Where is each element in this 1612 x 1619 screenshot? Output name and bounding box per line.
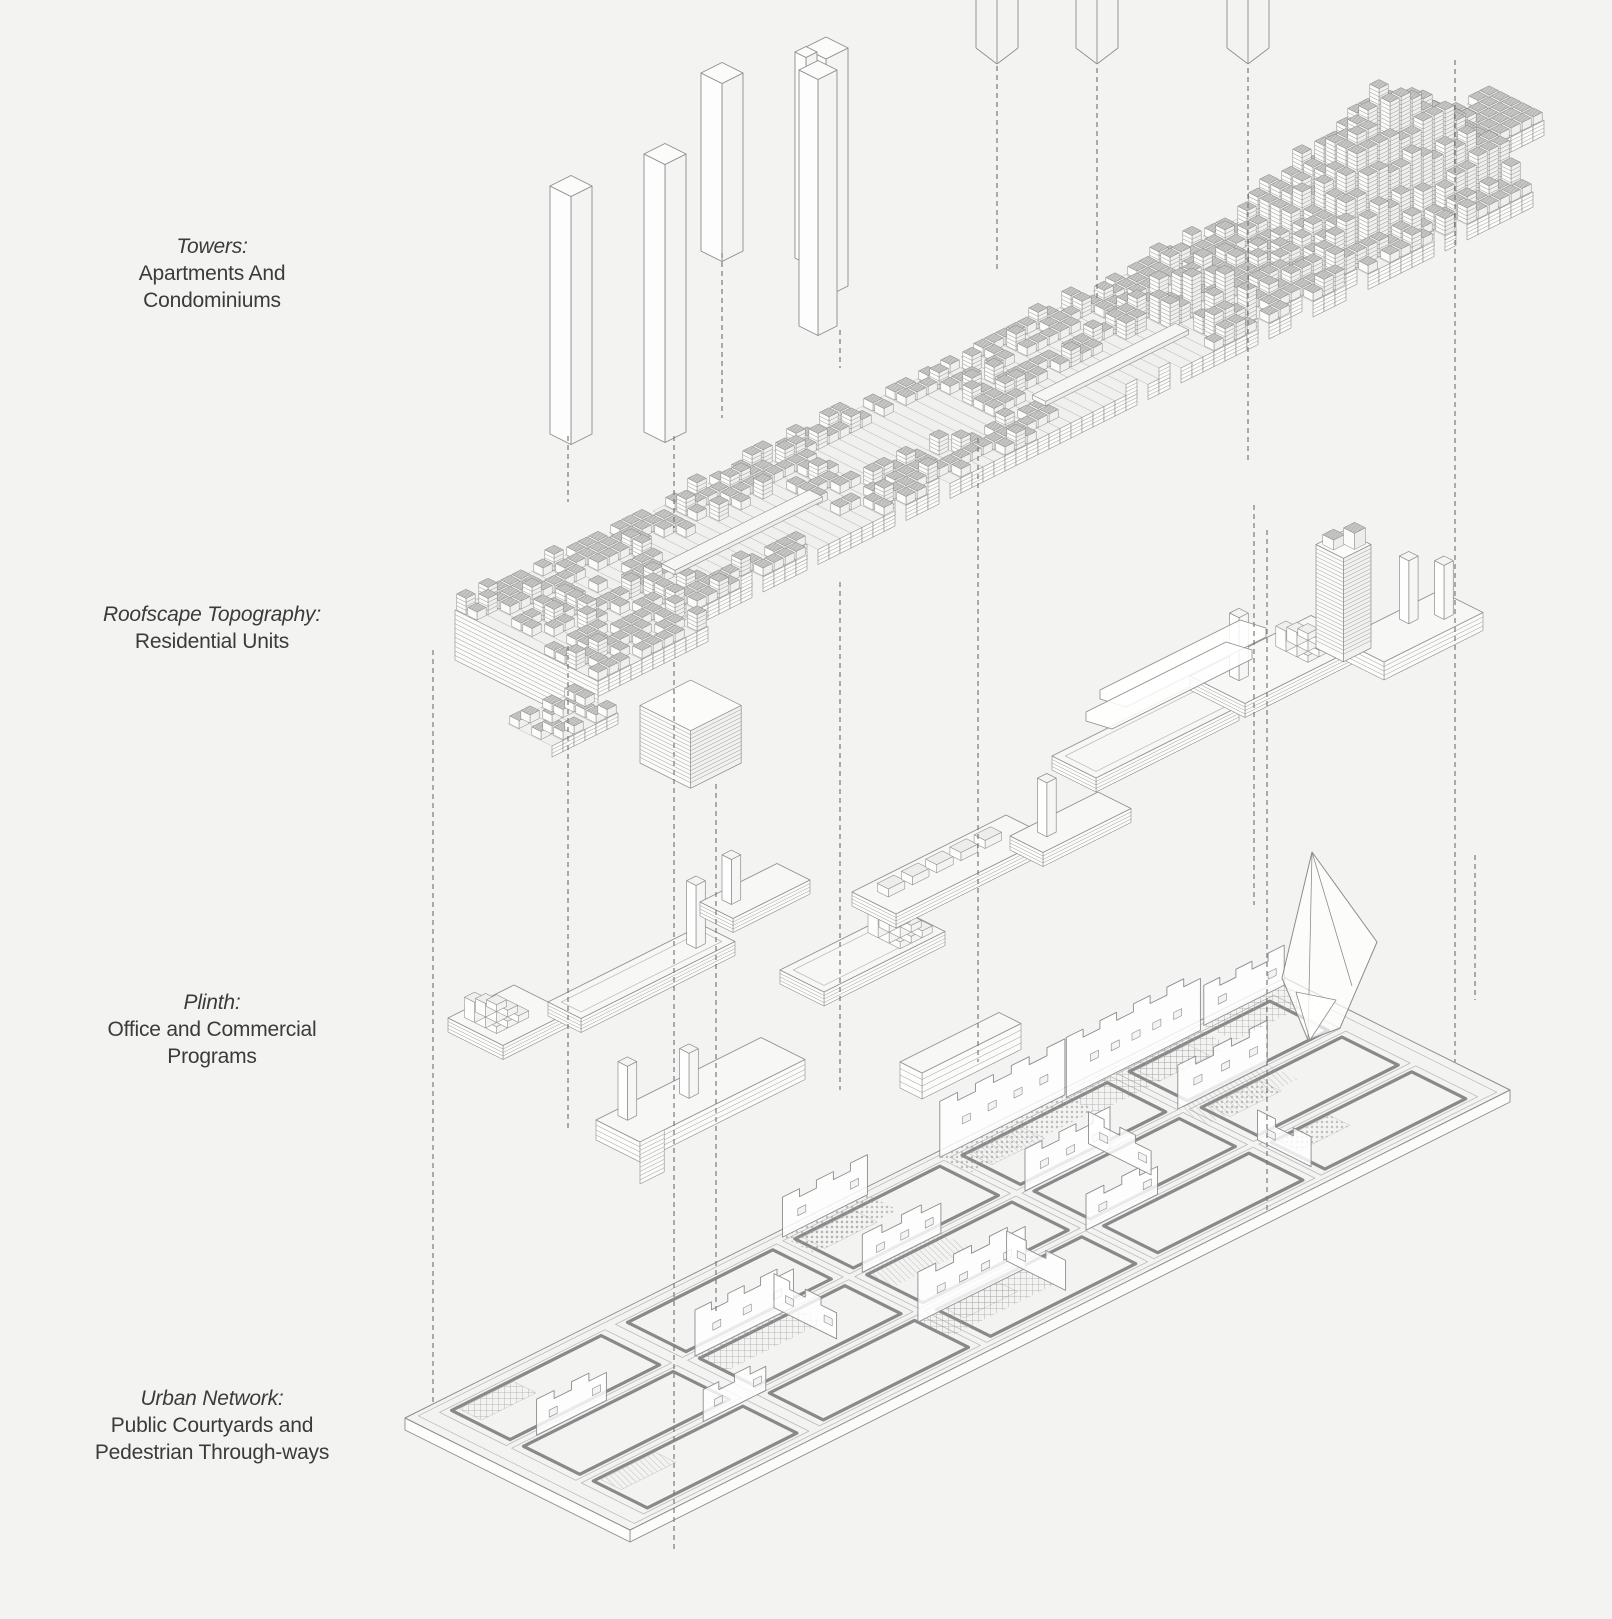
label-roofscape-title: Roofscape Topography: [22,601,402,628]
label-roofscape-line: Residential Units [22,628,402,655]
label-urban-network-title: Urban Network: [22,1385,402,1412]
label-plinth-line: Programs [22,1043,402,1070]
label-urban-network: Urban Network: Public Courtyards and Ped… [22,1385,402,1466]
label-towers: Towers: Apartments And Condominiums [22,233,402,314]
label-plinth: Plinth: Office and Commercial Programs [22,989,402,1070]
diagram-stage: Towers: Apartments And Condominiums Roof… [0,0,1612,1619]
label-towers-line: Apartments And [22,260,402,287]
roofscape-layer [455,80,1544,789]
label-urban-network-line: Public Courtyards and [22,1412,402,1439]
label-plinth-line: Office and Commercial [22,1016,402,1043]
urban-network-layer [405,852,1510,1542]
label-roofscape: Roofscape Topography: Residential Units [22,601,402,655]
label-towers-line: Condominiums [22,287,402,314]
label-urban-network-line: Pedestrian Through-ways [22,1439,402,1466]
label-plinth-title: Plinth: [22,989,402,1016]
label-towers-title: Towers: [22,233,402,260]
